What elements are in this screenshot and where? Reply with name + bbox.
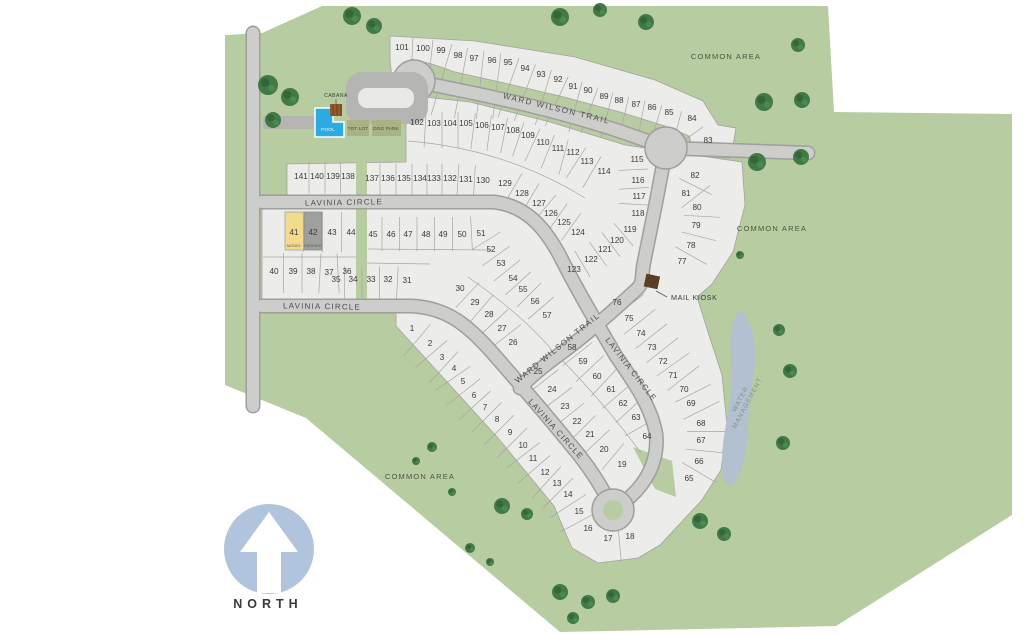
lot-number-114: 114 [597,167,610,176]
lot-number-29: 29 [470,298,480,307]
cabana-icon [330,104,342,116]
lot-number-95: 95 [503,58,513,67]
lot-number-27: 27 [497,324,507,333]
lot-number-133: 133 [427,174,441,183]
lot-number-87: 87 [631,100,641,109]
lot-number-31: 31 [402,276,412,285]
lot-number-81: 81 [681,189,691,198]
lot-number-86: 86 [647,103,657,112]
tree-icon [638,14,654,30]
common-area-right-label: COMMON AREA [737,224,807,233]
lot-number-14: 14 [563,490,573,499]
lot-number-11: 11 [529,454,538,463]
lot-number-47: 47 [403,230,413,239]
lot-number-135: 135 [397,174,411,183]
lot-number-80: 80 [692,203,702,212]
lot-number-10: 10 [518,441,528,450]
lot-number-70: 70 [679,385,689,394]
lot-number-73: 73 [647,343,657,352]
lot-number-136: 136 [381,174,395,183]
common-area-top-right-label: COMMON AREA [691,52,761,61]
lot-number-49: 49 [438,230,448,239]
lot-number-85: 85 [664,108,674,117]
tree-icon [791,38,805,52]
lot-number-7: 7 [483,403,488,412]
lot-number-117: 117 [632,192,645,201]
lot-number-122: 122 [584,255,598,264]
tree-icon [606,589,620,603]
lot-number-100: 100 [416,44,430,53]
lot-number-55: 55 [518,285,528,294]
tree-icon [427,442,437,452]
site-plan-page: 1011009998979695949392919089888786858483… [0,0,1035,635]
cabana-label: CABANA [324,93,348,99]
lot-number-2: 2 [428,339,433,348]
lot-number-60: 60 [592,372,602,381]
tree-icon [717,527,731,541]
lot-number-67: 67 [696,436,706,445]
lot-number-109: 109 [521,131,535,140]
lot-number-101: 101 [395,43,409,52]
lot-number-46: 46 [386,230,396,239]
parking-island [358,88,414,108]
tree-icon [793,149,809,165]
lot-number-94: 94 [520,64,530,73]
lot-number-137: 137 [365,174,379,183]
lot-number-130: 130 [476,176,490,185]
common-area-bottom-left-label: COMMON AREA [385,472,455,481]
lot-number-128: 128 [515,189,529,198]
lot-number-124: 124 [571,228,585,237]
lot-number-134: 134 [413,174,427,183]
tree-icon [265,112,281,128]
lot-number-105: 105 [459,119,473,128]
lot-number-42: 42 [308,228,318,237]
lot-number-139: 139 [326,172,340,181]
lot-number-4: 4 [452,364,457,373]
lot-number-44: 44 [346,228,356,237]
lot-number-119: 119 [623,225,636,234]
lot-number-97: 97 [469,54,479,63]
lot-number-9: 9 [508,428,513,437]
lot-number-120: 120 [610,236,624,245]
lot-number-141: 141 [294,172,308,181]
lot-number-21: 21 [585,430,595,439]
lot-number-40: 40 [269,267,279,276]
lot-number-72: 72 [658,357,668,366]
lot-number-108: 108 [506,126,520,135]
lot-number-76: 76 [612,298,622,307]
lot-number-43: 43 [327,228,337,237]
lot-number-121: 121 [598,245,612,254]
lot-number-113: 113 [580,157,593,166]
lot-number-8: 8 [495,415,500,424]
lot-number-116: 116 [631,176,644,185]
lot-number-65: 65 [684,474,694,483]
lot-number-23: 23 [560,402,570,411]
lot-number-22: 22 [572,417,582,426]
green-strip-pocket [356,162,367,304]
lot-number-37: 37 [324,268,334,277]
lot-number-111: 111 [552,144,565,153]
lot-number-84: 84 [687,114,697,123]
lot-number-96: 96 [487,56,497,65]
lot-number-106: 106 [475,121,489,130]
lot-number-115: 115 [630,155,643,164]
tree-icon [755,93,773,111]
tree-icon [465,543,475,553]
tree-icon [736,251,744,259]
lot-number-6: 6 [472,391,477,400]
lot-number-69: 69 [686,399,696,408]
tree-icon [794,92,810,108]
lot-number-18: 18 [625,532,635,541]
tree-icon [552,584,568,600]
tree-icon [551,8,569,26]
tree-icon [343,7,361,25]
lot-number-140: 140 [310,172,324,181]
tree-icon [783,364,797,378]
lot-number-79: 79 [691,221,701,230]
mail-kiosk-label: MAIL KIOSK [671,293,717,302]
lot-number-15: 15 [574,507,584,516]
lot-number-98: 98 [453,51,463,60]
tree-icon [281,88,299,106]
lot-number-24: 24 [547,385,557,394]
lot-number-39: 39 [288,267,298,276]
lot-number-48: 48 [421,230,431,239]
lot-number-26: 26 [508,338,518,347]
lavinia-circle-lower-label: LAVINIA CIRCLE [283,301,361,311]
lot-number-54: 54 [508,274,518,283]
lot-number-77: 77 [677,257,687,266]
lot-number-78: 78 [686,241,696,250]
lot-number-53: 53 [496,259,506,268]
lot-number-112: 112 [566,148,579,157]
lot-number-127: 127 [532,199,546,208]
parking-label: PARKING [304,243,322,248]
tree-icon [776,436,790,450]
lot-number-82: 82 [690,171,700,180]
lot-number-38: 38 [306,267,316,276]
lot-number-104: 104 [443,119,457,128]
lot-number-74: 74 [636,329,646,338]
lot-number-33: 33 [366,275,376,284]
model-label: MODEL [287,243,302,248]
lot-number-99: 99 [436,46,446,55]
lot-number-51: 51 [476,229,486,238]
lot-number-123: 123 [567,265,581,274]
lot-number-41: 41 [289,228,299,237]
lot-number-20: 20 [599,445,609,454]
lot-number-89: 89 [599,92,609,101]
lot-number-13: 13 [552,479,562,488]
lot-number-125: 125 [557,218,571,227]
lot-number-131: 131 [459,175,473,184]
lot-number-45: 45 [368,230,378,239]
tree-icon [258,75,278,95]
lot-number-16: 16 [583,524,593,533]
lot-number-132: 132 [443,174,457,183]
lot-number-28: 28 [484,310,494,319]
lot-number-36: 36 [342,267,352,276]
lot-number-66: 66 [694,457,704,466]
lot-number-110: 110 [536,138,549,147]
lot-number-91: 91 [568,82,578,91]
lot-number-56: 56 [530,297,540,306]
lot-number-5: 5 [461,377,466,386]
cul-de-sac-south-island [603,500,623,520]
lot-number-93: 93 [536,70,546,79]
tree-icon [593,3,607,17]
lot-number-59: 59 [578,357,588,366]
lot-number-88: 88 [614,96,624,105]
site-plan-map: 1011009998979695949392919089888786858483… [0,0,1035,635]
lot-number-63: 63 [631,413,641,422]
lot-number-129: 129 [498,179,512,188]
tree-icon [486,558,494,566]
dog-park-label: DOG PARK [373,126,399,131]
lot-number-52: 52 [486,245,496,254]
lot-number-32: 32 [383,275,393,284]
north-label: NORTH [233,597,302,611]
tree-icon [412,457,420,465]
lot-number-71: 71 [668,371,678,380]
north-arrow [224,504,314,594]
lot-number-83: 83 [703,136,713,145]
tree-icon [366,18,382,34]
lot-number-68: 68 [696,419,706,428]
tot-lot-label: TOT LOT [348,126,369,131]
tree-icon [581,595,595,609]
lot-number-102: 102 [410,118,424,127]
tree-icon [773,324,785,336]
lot-number-19: 19 [617,460,627,469]
lot-number-90: 90 [583,86,593,95]
lot-number-92: 92 [553,75,563,84]
lot-number-3: 3 [440,353,445,362]
lot-number-34: 34 [348,275,358,284]
tree-icon [748,153,766,171]
lot-number-50: 50 [457,230,467,239]
roundabout-northeast [645,127,687,169]
lot-number-57: 57 [542,311,552,320]
lot-number-75: 75 [624,314,634,323]
tree-icon [494,498,510,514]
tree-icon [448,488,456,496]
lot-number-126: 126 [544,209,558,218]
lot-number-64: 64 [642,432,652,441]
lot-number-30: 30 [455,284,465,293]
lot-number-107: 107 [491,123,505,132]
lot-number-103: 103 [427,119,441,128]
tree-icon [567,612,579,624]
pool-label: POOL [321,127,335,132]
lot-number-118: 118 [631,209,644,218]
lot-number-17: 17 [603,534,613,543]
tree-icon [692,513,708,529]
lot-number-12: 12 [540,468,550,477]
lot-number-61: 61 [606,385,616,394]
tree-icon [521,508,533,520]
lot-number-62: 62 [618,399,628,408]
lot-number-138: 138 [341,172,355,181]
lot-number-1: 1 [410,324,415,333]
lavinia-circle-upper-label: LAVINIA CIRCLE [305,197,383,207]
